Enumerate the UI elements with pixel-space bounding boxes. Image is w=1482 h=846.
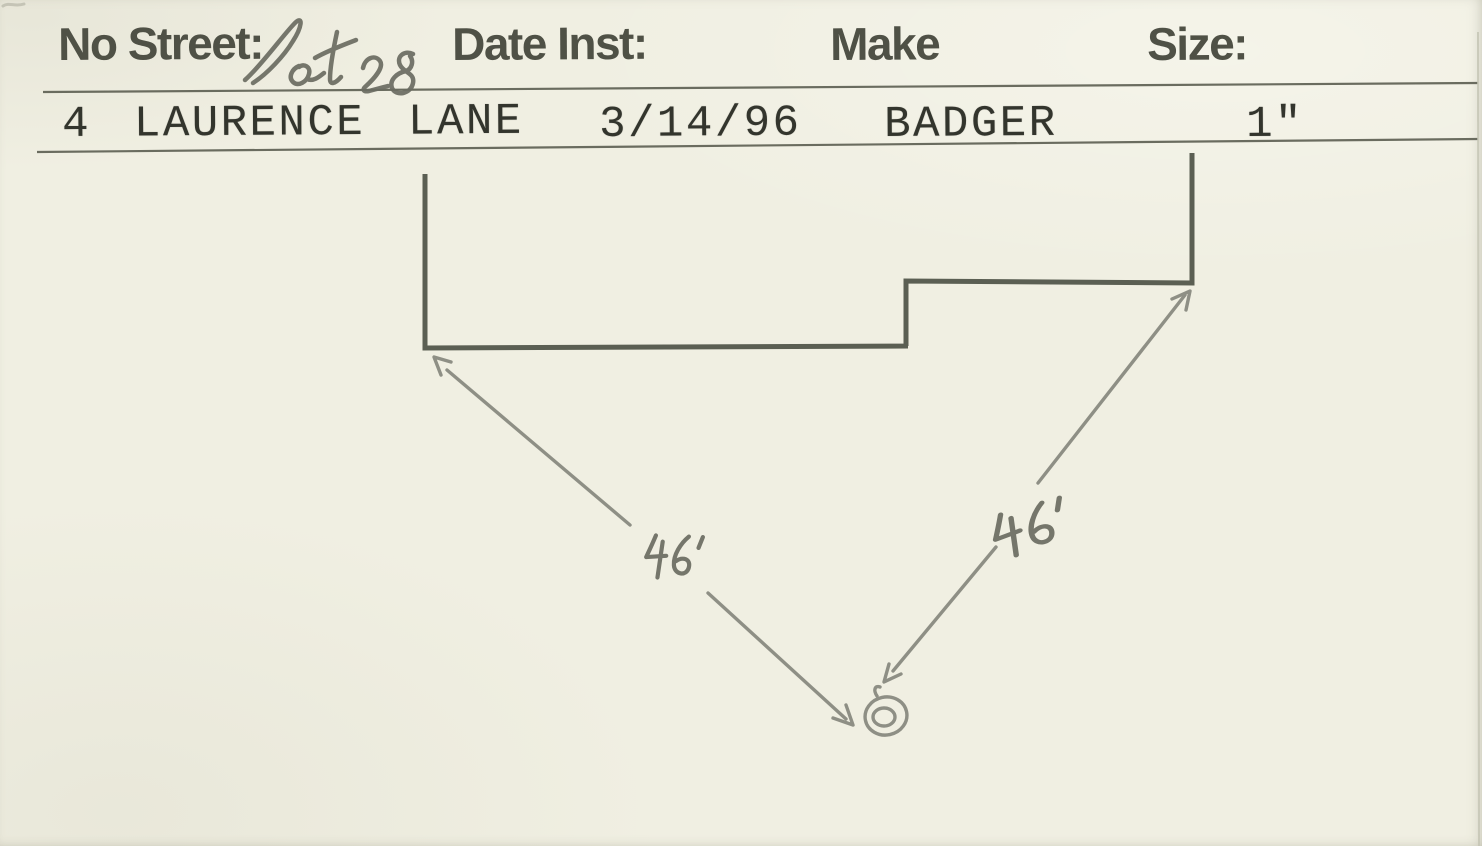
handwritten-lot-number: [245, 20, 413, 93]
pencil-smudge: [3, 4, 24, 6]
value-street-address: 4 LAURENCE LANE: [62, 100, 524, 147]
arrow-shaft: [447, 370, 630, 525]
arrow-shaft: [708, 593, 846, 719]
value-meter-make: BADGER: [884, 102, 1058, 147]
label-make: Make: [830, 20, 939, 67]
measurement-label-right: [989, 498, 1071, 560]
utility-record-card: No Street: Date Inst: Make Size: 4 LAURE…: [0, 0, 1482, 846]
label-size: Size:: [1147, 20, 1247, 67]
ruled-line-top: [43, 83, 1478, 92]
measurement-arrow-right: [884, 291, 1190, 682]
measurement-label-left: [645, 535, 702, 579]
service-point-circle: [862, 687, 911, 739]
label-no-street: No Street:: [58, 20, 263, 67]
measurement-arrow-left: [434, 357, 853, 725]
label-date-inst: Date Inst:: [452, 20, 647, 67]
value-date-installed: 3/14/96: [599, 102, 802, 147]
house-outline: [425, 153, 1192, 348]
card-right-edge: [1478, 32, 1479, 846]
arrow-shaft: [893, 547, 996, 671]
value-meter-size: 1": [1246, 103, 1304, 147]
arrow-shaft: [1038, 295, 1185, 483]
